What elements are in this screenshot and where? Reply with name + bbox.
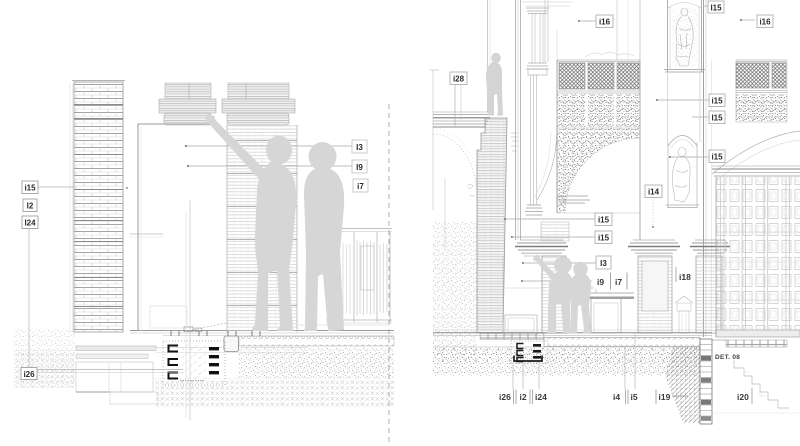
svg-text:I2: I2 — [27, 202, 34, 211]
svg-text:i26: i26 — [23, 370, 35, 379]
svg-text:i7: i7 — [615, 277, 622, 287]
svg-text:I3: I3 — [600, 259, 607, 268]
svg-text:i9: i9 — [597, 277, 604, 287]
svg-text:I15: I15 — [711, 114, 723, 123]
svg-text:DET. 08: DET. 08 — [715, 354, 740, 361]
svg-text:i7: i7 — [357, 182, 364, 191]
svg-text:i19: i19 — [659, 392, 671, 402]
svg-text:i5: i5 — [631, 392, 638, 402]
svg-text:i18: i18 — [679, 272, 691, 282]
svg-text:i26: i26 — [499, 392, 511, 402]
svg-text:i2: i2 — [520, 392, 527, 402]
svg-text:i15: i15 — [598, 234, 610, 243]
svg-text:I3: I3 — [356, 143, 363, 152]
svg-text:i16: i16 — [759, 18, 771, 27]
svg-text:i20: i20 — [737, 392, 749, 402]
svg-text:i14: i14 — [648, 188, 660, 197]
svg-text:i4: i4 — [613, 392, 620, 402]
svg-text:I15: I15 — [710, 3, 722, 12]
svg-text:i28: i28 — [453, 75, 465, 84]
svg-text:I9: I9 — [356, 163, 363, 172]
svg-text:i15: i15 — [598, 216, 610, 225]
svg-text:i15: i15 — [711, 153, 723, 162]
svg-text:i16: i16 — [599, 18, 611, 27]
svg-text:I24: I24 — [24, 219, 36, 228]
svg-text:i15: i15 — [711, 97, 723, 106]
svg-text:i15: i15 — [24, 184, 36, 193]
svg-text:i24: i24 — [535, 392, 547, 402]
